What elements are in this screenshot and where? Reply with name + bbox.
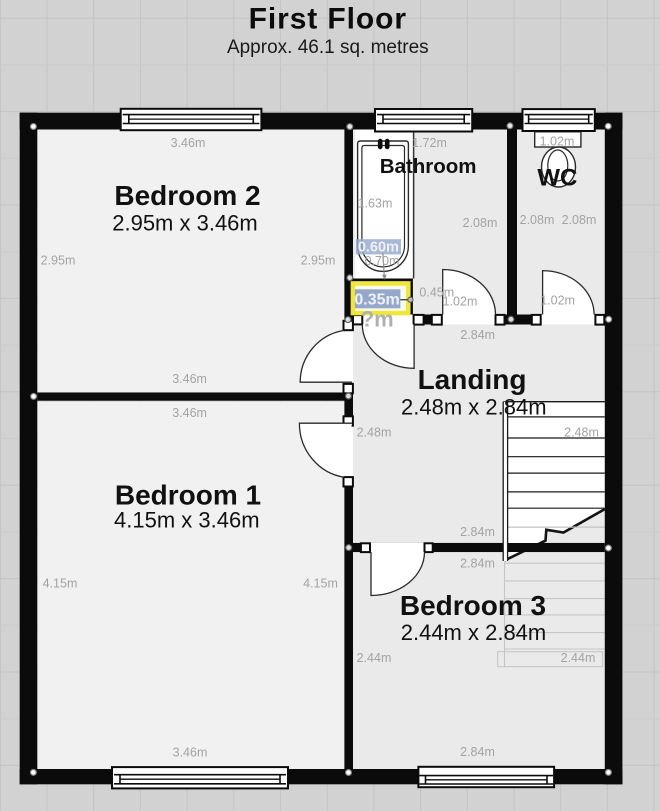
svg-text:2.84m: 2.84m [460,745,495,759]
svg-text:2.44m: 2.44m [561,651,596,665]
svg-text:Bedroom 2: Bedroom 2 [114,180,260,211]
svg-text:WC: WC [537,165,577,192]
svg-text:0.60m: 0.60m [358,239,399,255]
svg-text:2.95m x 3.46m: 2.95m x 3.46m [112,210,258,235]
svg-text:2.44m x 2.84m: 2.44m x 2.84m [401,620,547,645]
svg-text:3.46m: 3.46m [172,406,207,420]
svg-text:3.46m: 3.46m [173,745,208,759]
svg-text:4.15m: 4.15m [43,577,78,591]
svg-text:1.63m: 1.63m [358,196,393,210]
svg-text:Bedroom 3: Bedroom 3 [400,590,546,621]
svg-text:0.70m: 0.70m [365,254,400,268]
svg-text:3.46m: 3.46m [172,372,207,386]
svg-text:2.48m x 2.84m: 2.48m x 2.84m [401,395,547,420]
svg-text:2.08m: 2.08m [463,216,498,230]
svg-text:2.08m: 2.08m [562,213,597,227]
svg-text:3.46m: 3.46m [171,136,206,150]
svg-text:2.84m: 2.84m [460,328,495,342]
svg-text:2.95m: 2.95m [301,254,336,268]
svg-text:2.08m: 2.08m [520,213,555,227]
svg-text:2.44m: 2.44m [357,651,392,665]
svg-text:4.15m: 4.15m [303,577,338,591]
svg-text:2.48m: 2.48m [357,426,392,440]
svg-text:Approx. 46.1 sq. metres: Approx. 46.1 sq. metres [227,37,429,58]
svg-text:4.15m x 3.46m: 4.15m x 3.46m [114,508,260,533]
svg-text:First Floor: First Floor [249,2,407,35]
svg-text:Landing: Landing [418,364,527,395]
svg-text:2.84m: 2.84m [460,525,495,539]
svg-text:Bedroom 1: Bedroom 1 [115,480,261,511]
svg-text:1.02m: 1.02m [540,135,575,149]
svg-text:Bathroom: Bathroom [380,155,477,178]
svg-text:1.72m: 1.72m [412,136,447,150]
svg-text:1.02m: 1.02m [443,295,478,309]
svg-text:2.84m: 2.84m [460,557,495,571]
svg-text:2.95m: 2.95m [41,253,76,267]
svg-text:2.48m: 2.48m [564,425,599,439]
svg-text:?m: ?m [361,307,394,332]
svg-text:1.02m: 1.02m [540,294,575,308]
